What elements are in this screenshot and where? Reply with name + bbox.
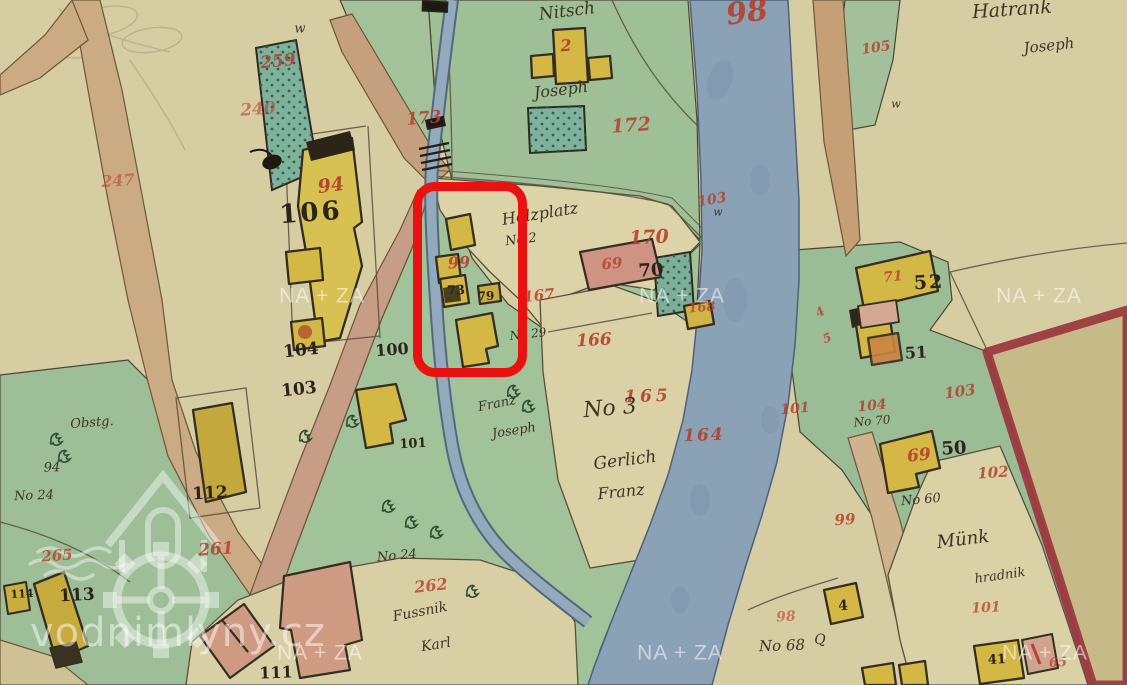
building-small-a: [286, 248, 323, 284]
building-pink-right: [858, 300, 899, 328]
highlight-rectangle: [413, 182, 527, 377]
building-41: [974, 640, 1024, 684]
building-70-garden-house: [684, 301, 714, 329]
building-pink-br: [1022, 634, 1058, 674]
building-4: [824, 583, 863, 624]
map-canvas: [0, 0, 1127, 685]
building-114: [4, 582, 30, 614]
cadastral-map: 2472592409417321721059899170103691671661…: [0, 0, 1127, 685]
